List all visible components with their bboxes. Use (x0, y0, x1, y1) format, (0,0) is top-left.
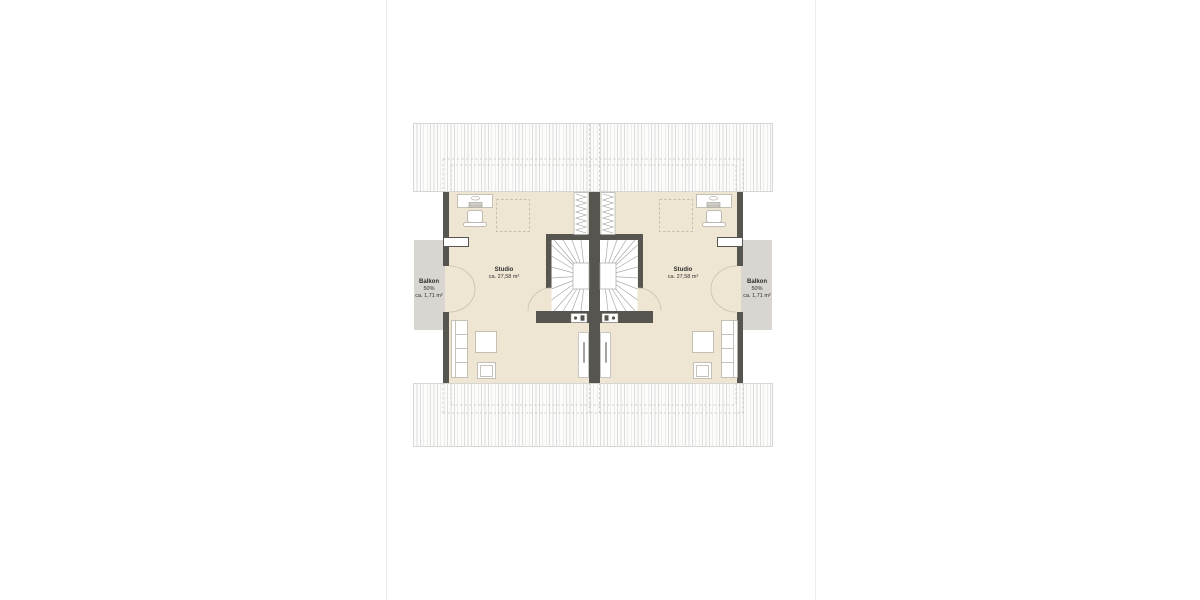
armchair-icon-left (478, 363, 496, 379)
balcony-label-right: Balkon 50% ca. 1,71 m² (743, 279, 771, 299)
sofa-icon-left (452, 321, 468, 378)
loft-ladder-icon-left (574, 193, 588, 235)
balcony-name: Balkon (415, 279, 443, 286)
coffee-table-icon-right (693, 332, 714, 353)
room-name: Studio (489, 267, 520, 274)
desk-icon-left (458, 195, 493, 208)
balcony-area: ca. 1,71 m² (415, 293, 443, 300)
stair-door-swing-icon-left (528, 288, 551, 311)
studio-label-left: Studio ca. 27,58 m² (489, 267, 520, 281)
stair-icon-right (600, 240, 638, 311)
stair-door-swing-icon-right (638, 288, 661, 311)
sofa-icon-right (722, 321, 738, 378)
studio-label-right: Studio ca. 27,58 m² (668, 267, 699, 281)
room-area: ca. 27,58 m² (489, 274, 520, 281)
office-chair-icon-left (464, 211, 487, 227)
office-chair-icon-right (703, 211, 726, 227)
balcony-door-swing-icon-left (449, 266, 475, 312)
balcony-area: ca. 1,71 m² (743, 293, 771, 300)
coffee-table-icon-left (476, 332, 497, 353)
balcony-label-left: Balkon 50% ca. 1,71 m² (415, 279, 443, 299)
floorplan-sheet: Studio ca. 27,58 m² Studio ca. 27,58 m² … (0, 0, 1200, 600)
plan-linework (0, 0, 1200, 600)
loft-ladder-icon-right (601, 193, 615, 235)
stair-bottom-niche-right (602, 314, 618, 323)
room-area: ca. 27,58 m² (668, 274, 699, 281)
desk-icon-right (697, 195, 732, 208)
stair-bottom-niche-left (571, 314, 587, 323)
balcony-door-swing-icon-right (711, 266, 737, 312)
rooflight-dashed-icon-right (660, 200, 693, 232)
room-name: Studio (668, 267, 699, 274)
roof-dashed-outline-top (443, 124, 743, 192)
armchair-icon-right (694, 363, 712, 379)
balcony-name: Balkon (743, 279, 771, 286)
rooflight-dashed-icon-left (497, 200, 530, 232)
roof-dashed-outline-bottom (443, 383, 743, 414)
stair-icon-left (552, 240, 590, 311)
